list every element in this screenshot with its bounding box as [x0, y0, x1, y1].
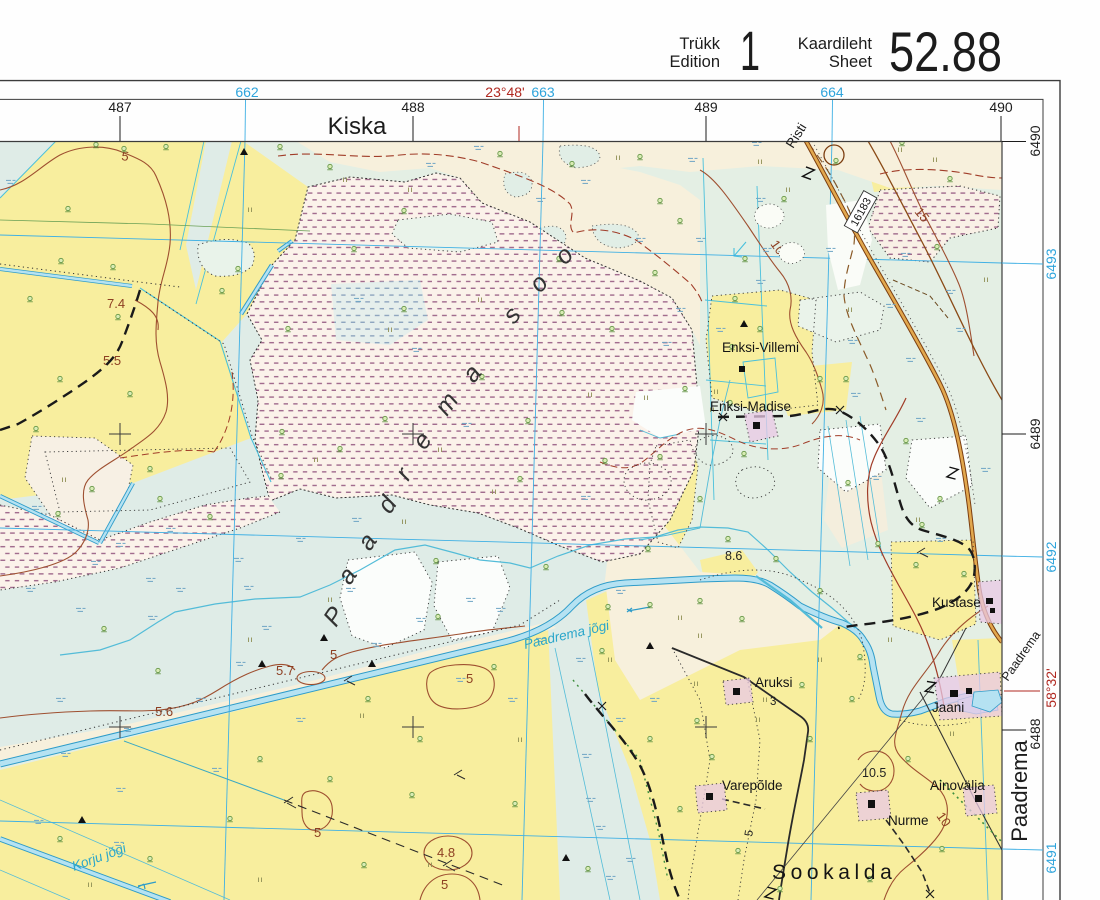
svg-text:487: 487 — [108, 99, 132, 115]
svg-text:Nurme: Nurme — [888, 813, 929, 828]
svg-text:7.4: 7.4 — [107, 296, 125, 311]
svg-text:Trükk: Trükk — [679, 35, 720, 53]
svg-text:664: 664 — [820, 84, 844, 100]
svg-text:1: 1 — [740, 19, 760, 82]
svg-text:8.6: 8.6 — [725, 549, 742, 563]
svg-text:5: 5 — [314, 825, 321, 840]
svg-text:4.8: 4.8 — [437, 845, 455, 860]
svg-text:52.88: 52.88 — [889, 20, 1002, 83]
svg-text:Sheet: Sheet — [829, 53, 873, 71]
svg-text:6492: 6492 — [1043, 541, 1059, 572]
svg-text:Aruksi: Aruksi — [755, 675, 793, 690]
svg-text:6489: 6489 — [1027, 418, 1043, 449]
svg-text:489: 489 — [694, 99, 718, 115]
svg-text:Kaardileht: Kaardileht — [798, 35, 873, 53]
svg-text:5.6: 5.6 — [155, 704, 173, 719]
svg-text:Varepõlde: Varepõlde — [722, 778, 783, 793]
svg-text:6490: 6490 — [1027, 125, 1043, 156]
svg-text:Kustase: Kustase — [932, 595, 981, 610]
svg-text:663: 663 — [531, 84, 555, 100]
svg-text:490: 490 — [989, 99, 1013, 115]
svg-text:5.7: 5.7 — [276, 663, 294, 678]
svg-text:Enksi-Madise: Enksi-Madise — [710, 399, 791, 414]
svg-text:662: 662 — [235, 84, 259, 100]
svg-text:5: 5 — [330, 647, 337, 662]
svg-text:Sookalda: Sookalda — [772, 861, 896, 884]
svg-text:5: 5 — [466, 671, 473, 686]
svg-text:Ainovälja: Ainovälja — [930, 778, 985, 793]
svg-text:58°32': 58°32' — [1043, 668, 1059, 707]
svg-text:Edition: Edition — [670, 53, 720, 71]
svg-text:3: 3 — [770, 696, 776, 708]
svg-text:488: 488 — [401, 99, 425, 115]
svg-text:6491: 6491 — [1043, 842, 1059, 873]
svg-text:Enksi-Villemi: Enksi-Villemi — [722, 340, 799, 355]
svg-text:6493: 6493 — [1043, 248, 1059, 279]
svg-text:Kiska: Kiska — [328, 113, 387, 140]
svg-text:23°48': 23°48' — [485, 84, 524, 100]
svg-text:Paadrema: Paadrema — [1007, 739, 1032, 841]
svg-text:Jaani: Jaani — [932, 700, 964, 715]
svg-text:5: 5 — [441, 877, 448, 892]
